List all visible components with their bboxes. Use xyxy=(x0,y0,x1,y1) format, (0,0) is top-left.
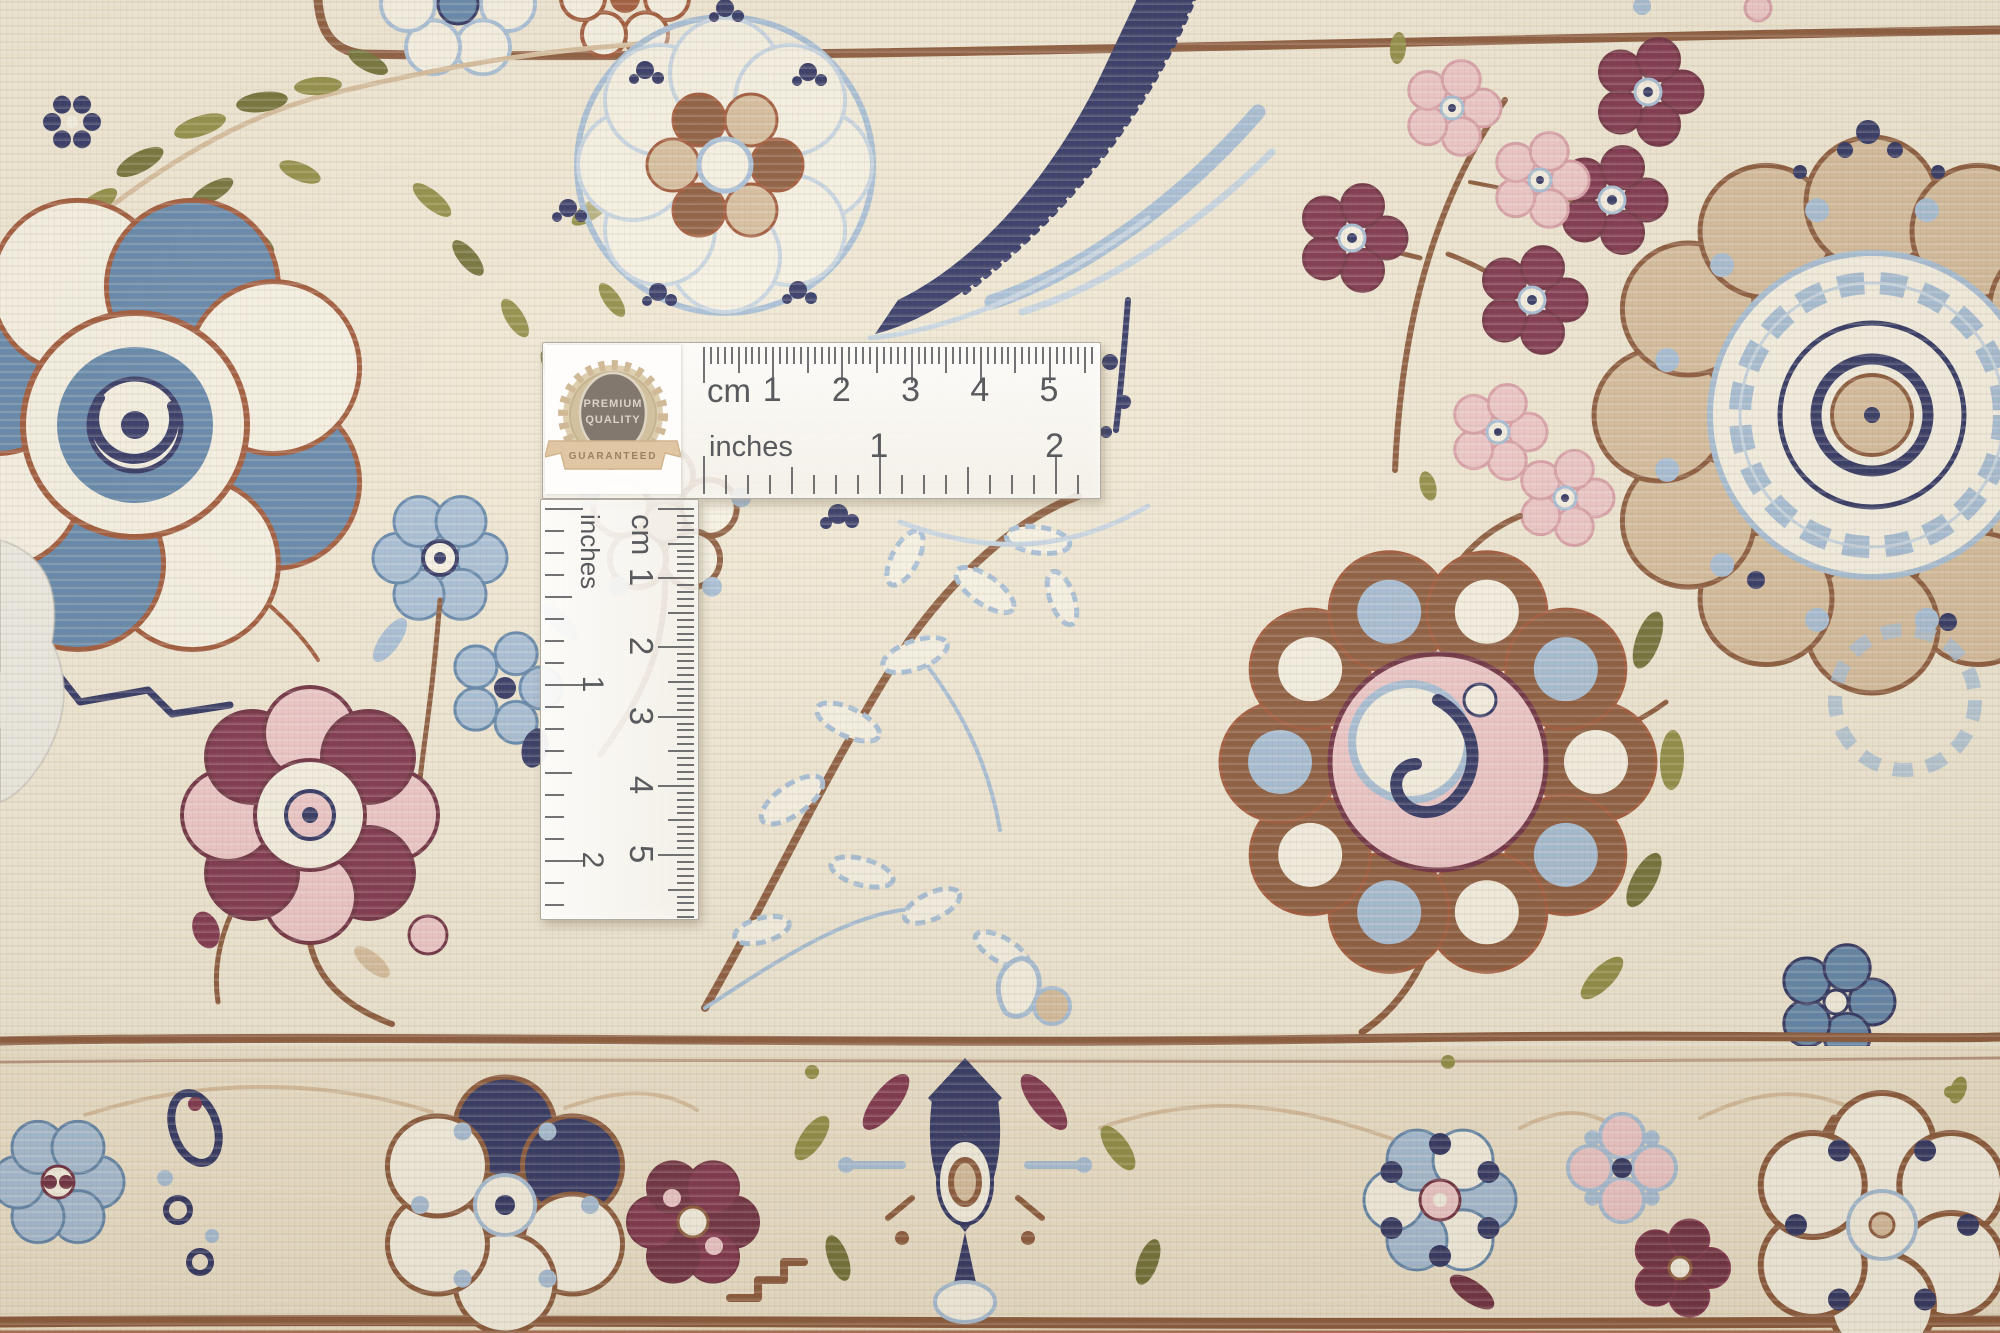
tick-mark xyxy=(1035,347,1037,364)
tick-mark xyxy=(677,833,694,835)
tick-mark xyxy=(738,347,740,373)
tick-mark xyxy=(703,456,705,494)
tick-mark xyxy=(1077,475,1079,494)
tick-mark xyxy=(1011,475,1013,494)
inch-number: 2 xyxy=(1045,429,1064,463)
tick-mark xyxy=(545,904,564,906)
tick-mark xyxy=(857,475,859,494)
cm-number: 4 xyxy=(625,776,658,794)
tick-mark xyxy=(1070,347,1072,364)
tick-mark xyxy=(677,861,694,863)
tick-mark xyxy=(725,475,727,494)
tick-mark xyxy=(952,347,954,364)
tick-mark xyxy=(668,750,694,752)
tick-mark xyxy=(677,563,694,565)
vertical-ruler-scale: cm inches 1234512 xyxy=(541,500,698,919)
tick-mark xyxy=(945,475,947,494)
tick-mark xyxy=(677,522,694,524)
cm-number: 2 xyxy=(625,637,658,655)
tick-mark xyxy=(677,778,694,780)
tick-mark xyxy=(658,854,694,856)
tick-mark xyxy=(786,347,788,364)
tick-mark xyxy=(677,619,694,621)
cm-number: 5 xyxy=(1040,373,1059,407)
tick-mark xyxy=(769,475,771,494)
tick-mark xyxy=(897,347,899,364)
tick-mark xyxy=(677,916,694,918)
carpet-photo-stage: PREMIUM QUALITY GUARANTEED cm inches 123… xyxy=(0,0,2000,1333)
tick-mark xyxy=(677,826,694,828)
tick-mark xyxy=(1033,475,1035,494)
tick-mark xyxy=(901,475,903,494)
tick-mark xyxy=(994,347,996,364)
tick-mark xyxy=(677,840,694,842)
tick-mark xyxy=(869,347,871,364)
tick-mark xyxy=(1091,347,1093,364)
tick-mark xyxy=(658,785,694,787)
tick-mark xyxy=(677,723,694,725)
tick-mark xyxy=(677,902,694,904)
tick-mark xyxy=(677,653,694,655)
tick-mark xyxy=(747,475,749,494)
tick-mark xyxy=(677,806,694,808)
carpet-pattern xyxy=(0,0,2000,1333)
tick-mark xyxy=(791,467,793,494)
tick-mark xyxy=(923,475,925,494)
tick-mark xyxy=(1063,347,1065,364)
tick-mark xyxy=(834,347,836,364)
tick-mark xyxy=(677,909,694,911)
carpet-pattern-layer xyxy=(0,0,2000,1333)
tick-mark xyxy=(545,838,564,840)
tick-mark xyxy=(658,646,694,648)
tick-mark xyxy=(862,347,864,364)
tick-mark xyxy=(758,347,760,364)
tick-mark xyxy=(890,347,892,364)
tick-mark xyxy=(807,347,809,373)
tick-mark xyxy=(677,556,694,558)
tick-mark xyxy=(989,475,991,494)
tick-mark xyxy=(677,660,694,662)
tick-mark xyxy=(814,347,816,364)
tick-mark xyxy=(677,688,694,690)
tick-mark xyxy=(987,347,989,364)
tick-mark xyxy=(677,633,694,635)
tick-mark xyxy=(793,347,795,364)
tick-mark xyxy=(677,515,694,517)
tick-mark xyxy=(677,736,694,738)
tick-mark xyxy=(1042,347,1044,364)
tick-mark xyxy=(1001,347,1003,364)
tick-mark xyxy=(828,347,830,364)
tick-mark xyxy=(779,347,781,364)
tick-mark xyxy=(545,728,564,730)
tick-mark xyxy=(1014,347,1016,373)
tick-mark xyxy=(677,570,694,572)
tick-mark xyxy=(945,347,947,373)
tick-mark xyxy=(1077,347,1079,364)
tick-mark xyxy=(800,347,802,364)
tick-mark xyxy=(703,347,705,383)
tick-mark xyxy=(677,639,694,641)
tick-mark xyxy=(924,347,926,364)
tick-mark xyxy=(677,709,694,711)
tick-mark xyxy=(668,681,694,683)
tick-mark xyxy=(717,347,719,364)
tick-mark xyxy=(545,618,564,620)
tick-mark xyxy=(1084,347,1086,373)
tick-mark xyxy=(677,771,694,773)
tick-mark xyxy=(677,812,694,814)
tick-mark xyxy=(765,347,767,364)
tick-mark xyxy=(938,347,940,364)
tick-mark xyxy=(959,347,961,364)
tick-mark xyxy=(677,764,694,766)
tick-mark xyxy=(745,347,747,364)
tick-mark xyxy=(677,702,694,704)
tick-mark xyxy=(677,598,694,600)
tick-mark xyxy=(545,816,564,818)
cm-number: 2 xyxy=(832,373,851,407)
tick-mark xyxy=(883,347,885,364)
inches-unit-label: inches xyxy=(709,433,793,462)
tick-mark xyxy=(677,847,694,849)
tick-mark xyxy=(668,889,694,891)
tick-mark xyxy=(677,584,694,586)
cm-number: 3 xyxy=(625,706,658,724)
inches-unit-label-vertical: inches xyxy=(577,514,603,589)
tick-mark xyxy=(677,550,694,552)
cm-number: 1 xyxy=(625,568,658,586)
tick-mark xyxy=(677,591,694,593)
tick-mark xyxy=(1028,347,1030,364)
tick-mark xyxy=(724,347,726,364)
tick-mark xyxy=(545,662,564,664)
cm-unit-label: cm xyxy=(707,374,751,407)
tick-mark xyxy=(973,347,975,364)
tick-mark xyxy=(876,347,878,373)
tick-mark xyxy=(1021,347,1023,364)
tick-mark xyxy=(545,794,564,796)
tick-mark xyxy=(545,596,572,598)
tick-mark xyxy=(658,508,694,510)
tick-mark xyxy=(668,612,694,614)
cm-number: 3 xyxy=(901,373,920,407)
tick-mark xyxy=(835,475,837,494)
tick-mark xyxy=(677,757,694,759)
tick-mark xyxy=(813,475,815,494)
ruler-horizontal: PREMIUM QUALITY GUARANTEED cm inches 123… xyxy=(542,342,1101,499)
tick-mark xyxy=(931,347,933,364)
cm-number: 4 xyxy=(970,373,989,407)
tick-mark xyxy=(677,667,694,669)
tick-mark xyxy=(677,729,694,731)
tick-mark xyxy=(918,347,920,364)
tick-mark xyxy=(677,896,694,898)
tick-mark xyxy=(677,875,694,877)
tick-mark xyxy=(545,640,564,642)
tick-mark xyxy=(967,467,969,494)
tick-mark xyxy=(677,799,694,801)
tick-mark xyxy=(677,529,694,531)
tick-mark xyxy=(545,552,564,554)
tick-mark xyxy=(545,530,564,532)
tick-mark xyxy=(668,819,694,821)
tick-mark xyxy=(677,792,694,794)
ruler-vertical: cm inches 1234512 xyxy=(540,499,699,920)
tick-mark xyxy=(545,882,564,884)
tick-mark xyxy=(1056,347,1058,364)
tick-mark xyxy=(677,743,694,745)
tick-mark xyxy=(677,626,694,628)
tick-mark xyxy=(710,347,712,364)
tick-mark xyxy=(751,347,753,364)
tick-mark xyxy=(545,750,564,752)
tick-mark xyxy=(855,347,857,364)
cm-number: 5 xyxy=(625,845,658,863)
tick-mark xyxy=(848,347,850,364)
cm-number: 1 xyxy=(763,373,782,407)
tick-mark xyxy=(731,347,733,364)
tick-mark xyxy=(545,574,564,576)
tick-mark xyxy=(658,577,694,579)
tick-mark xyxy=(821,347,823,364)
tick-mark xyxy=(545,772,572,774)
tick-mark xyxy=(658,716,694,718)
inch-number: 1 xyxy=(577,675,607,692)
tick-mark xyxy=(677,695,694,697)
tick-mark xyxy=(966,347,968,364)
tick-mark xyxy=(1007,347,1009,364)
tick-mark xyxy=(677,868,694,870)
horizontal-ruler-scale: cm inches 1234512 xyxy=(543,343,1100,498)
tick-mark xyxy=(677,605,694,607)
tick-mark xyxy=(677,674,694,676)
tick-mark xyxy=(677,882,694,884)
cm-unit-label-vertical: cm xyxy=(627,514,658,555)
tick-mark xyxy=(904,347,906,364)
inch-number: 2 xyxy=(577,851,607,868)
tick-mark xyxy=(545,706,564,708)
tick-mark xyxy=(677,536,694,538)
tick-mark xyxy=(668,543,694,545)
inch-number: 1 xyxy=(869,429,888,463)
tick-mark xyxy=(545,508,583,510)
